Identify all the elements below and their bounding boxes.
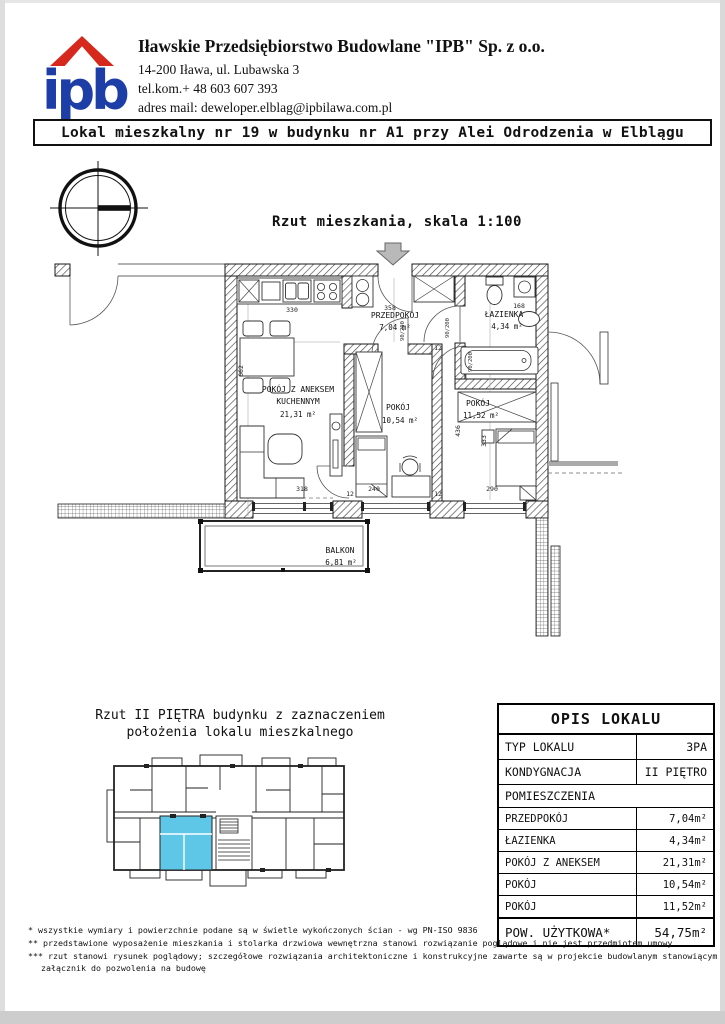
staircase: [216, 816, 252, 870]
room-area-pokoj1: 10,54 m²: [382, 416, 418, 425]
mini-plan-caption: Rzut II PIĘTRA budynku z zaznaczeniem po…: [58, 707, 422, 741]
apartment-floor-plan: Rzut mieszkania, skala 1:100: [0, 146, 725, 708]
north-indicator-icon: [50, 161, 148, 256]
mini-plan-caption-line1: Rzut II PIĘTRA budynku z zaznaczeniem: [58, 707, 422, 724]
company-address: 14-200 Iława, ul. Lubawska 3: [138, 60, 545, 79]
footnote-1: * wszystkie wymiary i powierzchnie podan…: [28, 924, 723, 937]
room-area-salon: 21,31 m²: [280, 410, 316, 419]
company-email: adres mail: deweloper.elblag@ipbilawa.co…: [138, 98, 545, 117]
dining-table-icon: [240, 321, 294, 393]
sink-icon: [283, 280, 311, 302]
document-page: ipb Iławskie Przedsiębiorstwo Budowlane …: [0, 0, 725, 1024]
room-label-lazienka: ŁAZIENKA: [484, 310, 524, 319]
desk-chair-icon: [392, 456, 430, 497]
corner-sofa-icon: [240, 426, 304, 498]
row-label: KONDYGNACJA: [498, 760, 637, 785]
row-label: POKÓJ: [498, 896, 637, 919]
row-value: 11,52m²: [637, 896, 715, 919]
door-size-label-2: 90/200: [445, 318, 451, 338]
hall-wardrobe: [414, 276, 454, 302]
dim-living: 318: [296, 485, 308, 493]
room-label-pokoj1: POKÓJ: [386, 401, 410, 412]
row-value: 10,54m²: [637, 874, 715, 896]
dim-kitchen: 330: [286, 306, 298, 314]
dim-left-wall: 662: [237, 365, 245, 377]
row-label: POKÓJ: [498, 874, 637, 896]
building-outline: [107, 755, 344, 886]
boiler-icon: [352, 276, 373, 307]
room-area-balkon: 6,81 m²: [325, 558, 357, 567]
row-value: 7,04m²: [637, 808, 715, 830]
dim-right-v: 333: [480, 435, 488, 447]
page-edge-top: [0, 0, 725, 3]
windows: [252, 498, 526, 514]
row-value: II PIĘTRO: [637, 760, 715, 785]
page-edge-bottom: [0, 1011, 725, 1024]
footnote-3-continued: załącznik do pozwolenia na budowę: [28, 962, 723, 975]
highlighted-unit: [160, 814, 212, 870]
logo-text: ipb: [42, 64, 126, 118]
room-label-salon-2: KUCHENNYM: [276, 397, 320, 406]
company-logo: ipb: [42, 36, 134, 116]
room-label-pokoj2: POKÓJ: [466, 397, 490, 408]
toilet-icon: [486, 277, 503, 305]
dim-thickness-2: 12: [434, 490, 442, 498]
row-label: ŁAZIENKA: [498, 830, 637, 852]
room-area-pokoj2: 11,52 m²: [463, 411, 499, 420]
dim-right: 290: [486, 485, 498, 493]
kitchen-counter: [237, 276, 373, 307]
company-info: Iławskie Przedsiębiorstwo Budowlane "IPB…: [138, 36, 545, 117]
exterior-slab: [58, 504, 225, 518]
room-area-lazienka: 4,34 m²: [491, 322, 523, 331]
right-exterior: [536, 332, 622, 636]
door-size-label-3: 90/200: [468, 352, 474, 372]
balcony: BALKON 6,81 m²: [198, 519, 370, 573]
dim-thickness-3: 12: [434, 344, 442, 352]
unit-description-table: OPIS LOKALU TYP LOKALU 3PA KONDYGNACJA I…: [497, 703, 715, 947]
dim-thickness-1: 12: [346, 490, 354, 498]
building-floor-plan: [100, 750, 372, 900]
table-title: OPIS LOKALU: [498, 704, 714, 734]
row-value: 3PA: [637, 734, 715, 760]
washing-machine-icon: [514, 277, 535, 297]
footnotes: * wszystkie wymiary i powierzchnie podan…: [28, 924, 723, 975]
row-label: POKÓJ Z ANEKSEM: [498, 852, 637, 874]
mini-plan-caption-line2: położenia lokalu mieszkalnego: [58, 724, 422, 741]
room-label-balkon: BALKON: [326, 546, 355, 555]
company-name: Iławskie Przedsiębiorstwo Budowlane "IPB…: [138, 36, 545, 57]
dim-hall: 358: [384, 304, 396, 312]
door-size-label-1: 90/200: [400, 321, 406, 341]
document-title: Lokal mieszkalny nr 19 w budynku nr A1 p…: [33, 119, 712, 146]
right-room-furniture: [458, 392, 536, 500]
room-area-przedpokoj: 7,04 m²: [379, 323, 411, 332]
dim-bath: 168: [513, 302, 525, 310]
entrance-arrow-icon: [377, 243, 409, 265]
row-value: 4,34m²: [637, 830, 715, 852]
row-label: POMIESZCZENIA: [498, 785, 714, 808]
row-label: TYP LOKALU: [498, 734, 637, 760]
footnote-3: *** rzut stanowi rysunek poglądowy; szcz…: [28, 950, 723, 963]
row-label: PRZEDPOKÓJ: [498, 808, 637, 830]
left-exterior-walls: [55, 264, 225, 325]
row-value: 21,31m²: [637, 852, 715, 874]
plan-caption: Rzut mieszkania, skala 1:100: [272, 214, 522, 230]
company-phone: tel.kom.+ 48 603 607 393: [138, 79, 545, 98]
dim-middle: 240: [368, 485, 380, 493]
footnote-2: ** przedstawione wyposażenie mieszkania …: [28, 937, 723, 950]
tv-cabinet-icon: [330, 414, 342, 476]
building-partitions: [114, 766, 344, 870]
room-label-salon-1: POKÓJ Z ANEKSEM: [262, 383, 334, 394]
stove-icon: [314, 280, 340, 302]
dim-middle-v: 436: [454, 425, 462, 437]
